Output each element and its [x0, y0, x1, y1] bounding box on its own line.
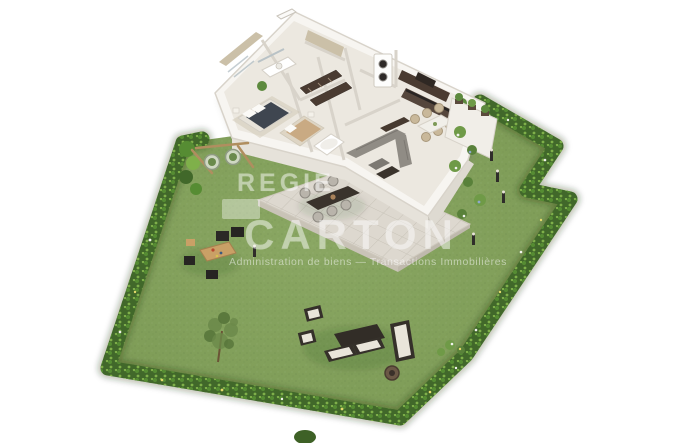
washer-dryer-stack: [374, 54, 392, 87]
nightstand2: [308, 112, 314, 117]
bollard-light: [253, 245, 256, 258]
garden-armchair: [216, 231, 229, 241]
wood-bench: [186, 239, 195, 246]
nightstand: [233, 108, 239, 113]
outer-bush: [294, 430, 316, 443]
bollard-light: [472, 233, 475, 246]
garden-chair: [206, 270, 218, 279]
bollard-light: [502, 191, 505, 204]
floorplan-render: REGIE CARTON Administration de biens — T…: [0, 0, 700, 443]
plant: [257, 81, 267, 91]
garden-armchair: [231, 227, 244, 237]
bollard-light: [496, 170, 499, 183]
scene-canvas: [0, 0, 700, 443]
garden-chair: [184, 256, 195, 265]
bollard-light: [490, 149, 493, 162]
